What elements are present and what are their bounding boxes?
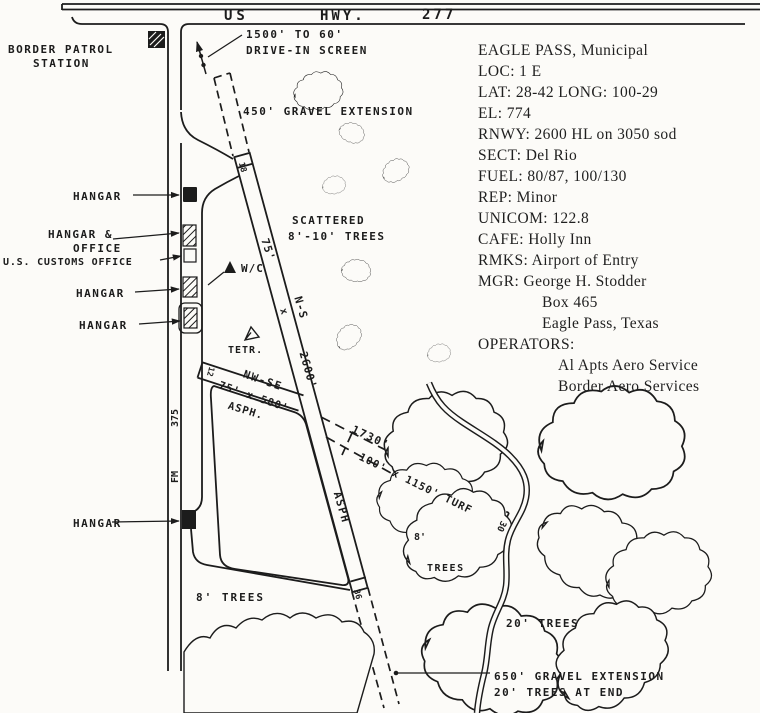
hangar-building-3: [184, 308, 197, 328]
gravel-650-label: 650' GRAVEL EXTENSION: [494, 670, 665, 683]
customs-office-building: [184, 249, 196, 262]
apron-edge: [193, 176, 239, 512]
tree-icon: [322, 176, 345, 194]
airport-title: EAGLE PASS, Municipal: [478, 40, 760, 61]
hwy-label-277: 277: [422, 7, 456, 23]
runway-ns-length-label: 2600': [296, 350, 319, 390]
wind-cone-label: W/C: [241, 262, 264, 275]
hwy-label-hwy: HWY.: [320, 8, 366, 24]
tree-icon: [379, 155, 413, 185]
tree-icon: [336, 118, 368, 148]
border-patrol-building-icon: [148, 31, 165, 48]
runway-ns-surface-label: ASPH: [331, 490, 352, 525]
hangar-mid2-label: HANGAR: [79, 319, 128, 332]
drive-in-label-1: 1500' TO 60': [246, 28, 343, 41]
drive-in-screen-arrow-icon: [197, 35, 242, 74]
runway-36-number: 36: [351, 588, 363, 600]
hangar-bottom-label: HANGAR: [73, 517, 122, 530]
turf-total-label: 1730': [350, 423, 392, 452]
border-patrol-label-2: STATION: [33, 57, 90, 70]
hangar-top-label: HANGAR: [73, 190, 122, 203]
info-operators-heading: OPERATORS:: [478, 334, 760, 355]
trees-8-mid-label-b: TREES: [427, 563, 465, 574]
trees-8-left-label: 8' TREES: [196, 591, 265, 604]
info-operator-1: Al Apts Aero Service: [478, 355, 760, 376]
info-remarks: RMKS: Airport of Entry: [478, 250, 760, 271]
runway-ns-x-label: x: [277, 307, 289, 316]
info-lat-long: LAT: 28-42 LONG: 100-29: [478, 82, 760, 103]
hwy-label-us: US: [224, 8, 249, 24]
airport-info-panel: EAGLE PASS, Municipal LOC: 1 E LAT: 28-4…: [478, 40, 760, 397]
hangar-bottom-leader: [112, 521, 179, 522]
tree-clusters: [184, 374, 711, 713]
info-sectional: SECT: Del Rio: [478, 145, 760, 166]
entrance-taxiway-edge: [181, 112, 233, 159]
drive-in-label-2: DRIVE-IN SCREEN: [246, 44, 368, 57]
highway-south-edge-west: [72, 17, 168, 671]
info-operator-2: Border Aero Services: [478, 376, 760, 397]
tree-icon: [339, 256, 373, 286]
tree-cluster-bottom-left: [184, 613, 374, 713]
hangar-office-label-1: HANGAR &: [48, 228, 113, 241]
fm-375-label: 375: [170, 409, 181, 427]
trees-8-mid-label-a: 8': [414, 532, 426, 543]
tree-icon: [331, 320, 367, 354]
wind-cone-leader: [208, 272, 224, 285]
hangar-office-building: [183, 225, 196, 246]
south-taxiway-edge: [191, 529, 350, 590]
runway-36-threshold: [351, 577, 366, 581]
scattered-trees-label-2: 8'-10' TREES: [288, 230, 385, 243]
gravel-450-label: 450' GRAVEL EXTENSION: [243, 105, 414, 118]
hangar-office-leader: [113, 233, 179, 239]
runway-12-number: 12: [205, 366, 216, 378]
customs-label: U.S. CUSTOMS OFFICE: [3, 257, 133, 268]
trees-end-label: 20' TREES AT END: [494, 686, 624, 699]
hangar-building-1: [183, 187, 197, 202]
hangar-building-2: [183, 277, 197, 297]
info-fuel: FUEL: 80/87, 100/130: [478, 166, 760, 187]
info-manager-box: Box 465: [478, 292, 760, 313]
info-loc: LOC: 1 E: [478, 61, 760, 82]
info-manager: MGR: George H. Stodder: [478, 271, 760, 292]
infield-outline: [211, 386, 349, 585]
tetrahedron-icon: [245, 327, 259, 340]
wind-cone-icon: [224, 261, 236, 273]
info-elevation: EL: 774: [478, 103, 760, 124]
trees-20-label: 20' TREES: [506, 617, 579, 630]
info-repairs: REP: Minor: [478, 187, 760, 208]
info-manager-city: Eagle Pass, Texas: [478, 313, 760, 334]
info-runway: RNWY: 2600 HL on 3050 sod: [478, 124, 760, 145]
scattered-trees-label-1: SCATTERED: [292, 214, 365, 227]
hangar-mid1-label: HANGAR: [76, 287, 125, 300]
gravel-650-leader-dot: [394, 671, 399, 676]
hangar-mid2-leader: [139, 321, 180, 324]
hangar-building-4: [182, 510, 196, 529]
info-cafe: CAFE: Holly Inn: [478, 229, 760, 250]
info-unicom: UNICOM: 122.8: [478, 208, 760, 229]
hangar-mid1-leader: [135, 289, 179, 292]
border-patrol-label-1: BORDER PATROL: [8, 43, 114, 56]
hangar-office-label-2: OFFICE: [73, 242, 122, 255]
airport-directory-page: US HWY. 277 BORDER PATROL STATION 1500' …: [0, 0, 760, 713]
fm-road-label: FM: [170, 471, 181, 483]
tetrahedron-label: TETR.: [228, 345, 263, 356]
highway-north-edge: [62, 4, 760, 10]
tree-icon: [427, 344, 450, 362]
customs-leader: [160, 256, 181, 260]
